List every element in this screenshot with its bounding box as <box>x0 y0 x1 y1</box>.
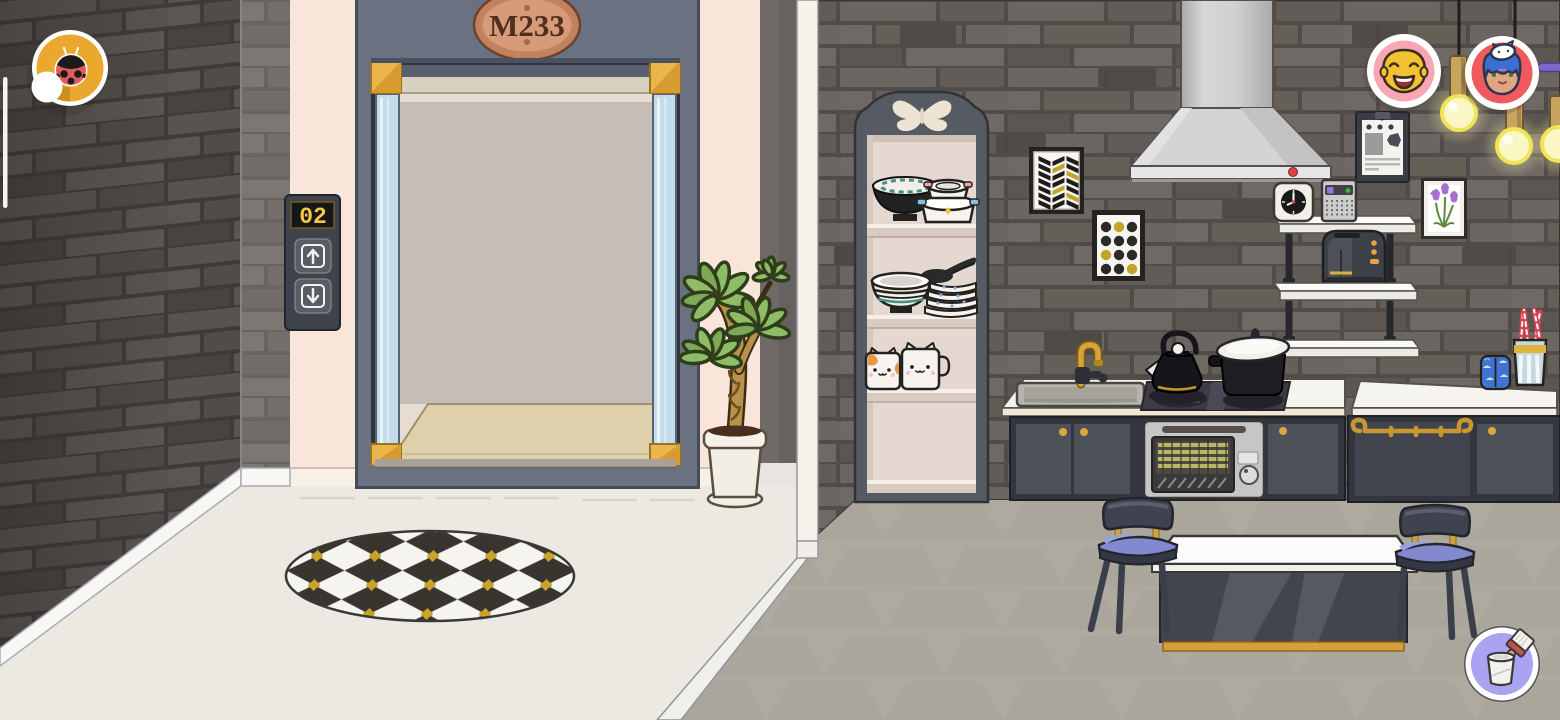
svg-text:02: 02 <box>299 204 327 230</box>
svg-text:M233: M233 <box>489 8 565 43</box>
